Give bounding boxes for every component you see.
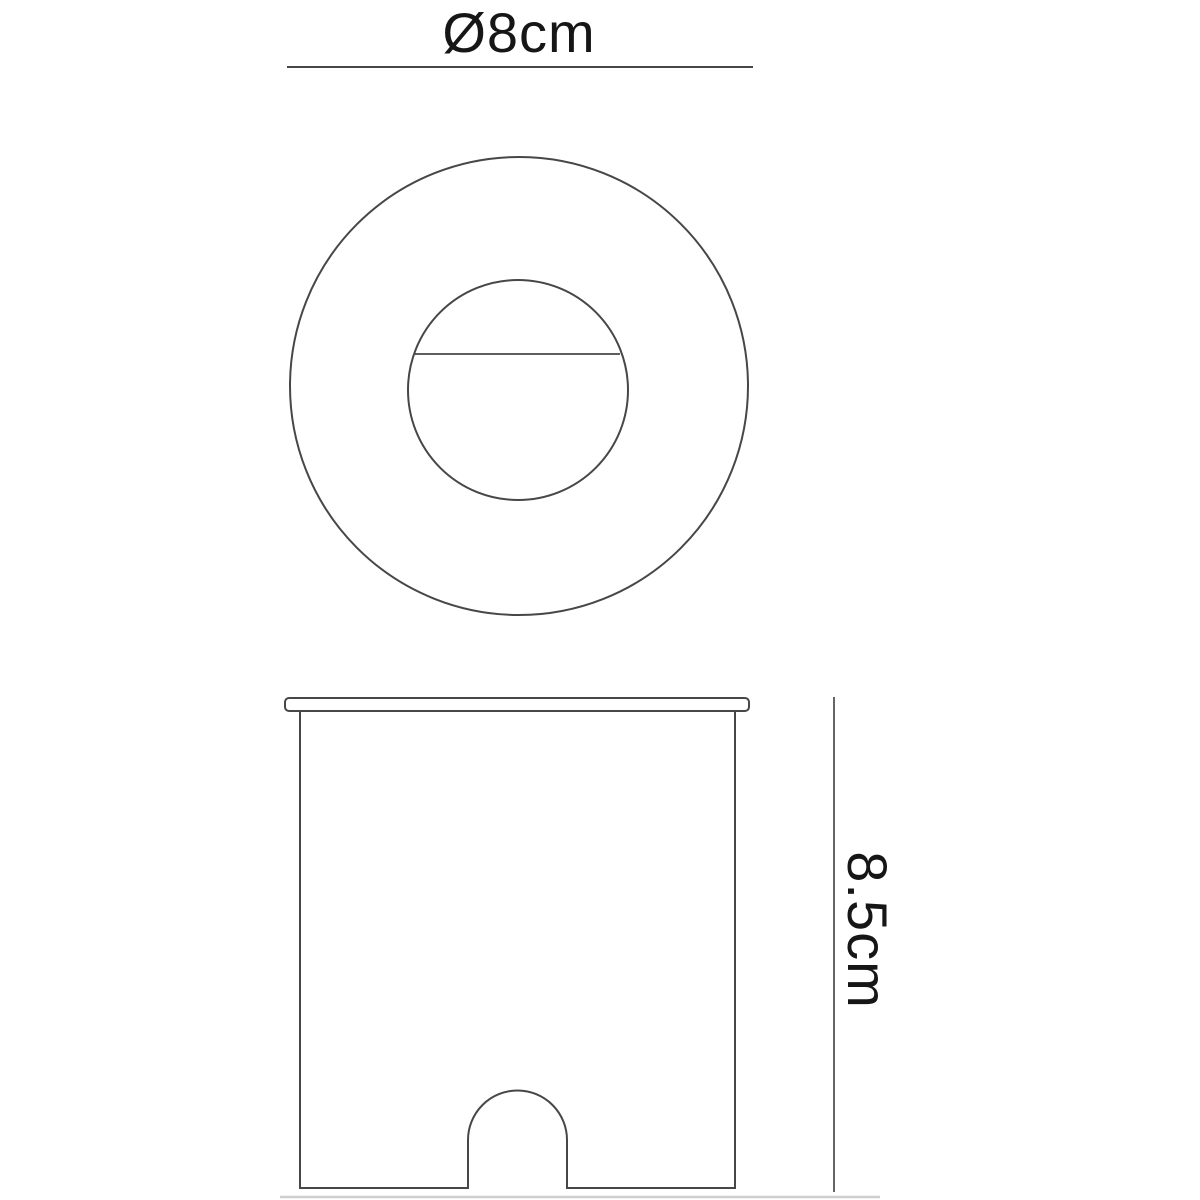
dimension-diagram: Ø8cm 8.5cm: [0, 0, 1200, 1200]
fixture-top-view: [290, 157, 748, 615]
inner-lens-circle: [408, 280, 628, 500]
drawing-canvas: Ø8cm 8.5cm: [0, 0, 1200, 1200]
outer-bezel-circle: [290, 157, 748, 615]
height-dimension-label: 8.5cm: [836, 851, 899, 1009]
fixture-side-view: [285, 698, 749, 1188]
mounting-flange: [285, 698, 749, 711]
fixture-body-outline: [300, 711, 735, 1188]
diameter-dimension-label: Ø8cm: [442, 1, 595, 64]
